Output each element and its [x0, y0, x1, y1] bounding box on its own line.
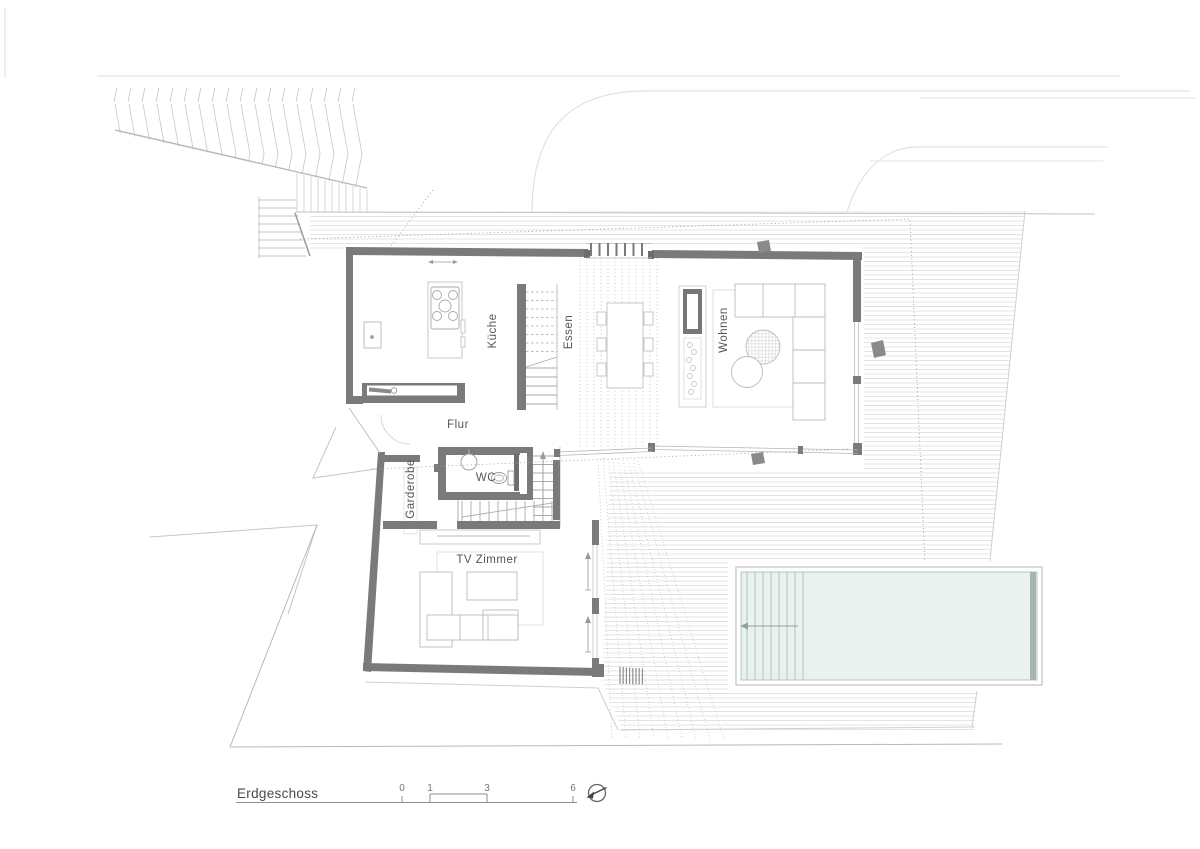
room-label-tv-zimmer: TV Zimmer [456, 554, 517, 566]
room-label-wohnen: Wohnen [718, 307, 730, 353]
terrain-slope-hatch [113, 88, 368, 212]
floor-plan-drawing: Küche Essen Wohnen Garderobe Flur WC TV … [0, 0, 1200, 849]
scale-tick-1: 1 [427, 783, 433, 794]
door-leaf-wc [514, 454, 519, 491]
pool-edge-band [1030, 572, 1036, 680]
floor-title: Erdgeschoss [237, 786, 318, 801]
tv-sideboard [420, 530, 540, 544]
room-label-wc: WC [476, 472, 496, 484]
cooktop-icon [431, 287, 459, 329]
kitchen-sink-icon [364, 322, 381, 348]
room-label-garderobe: Garderobe [405, 459, 417, 518]
dining-table [597, 303, 653, 388]
pool [728, 561, 1048, 691]
scale-tick-0: 0 [399, 783, 405, 794]
north-arrow-icon [587, 785, 607, 802]
round-ottoman [732, 357, 763, 388]
room-label-essen: Essen [563, 315, 575, 349]
room-label-kueche: Küche [487, 313, 499, 348]
scale-tick-3: 3 [484, 783, 490, 794]
scale-tick-6: 6 [570, 783, 576, 794]
title-block: Erdgeschoss 0 1 3 6 [236, 783, 607, 803]
floor-plan-page: Küche Essen Wohnen Garderobe Flur WC TV … [0, 0, 1200, 849]
fireplace-icon [679, 286, 706, 407]
room-label-flur: Flur [447, 419, 469, 431]
